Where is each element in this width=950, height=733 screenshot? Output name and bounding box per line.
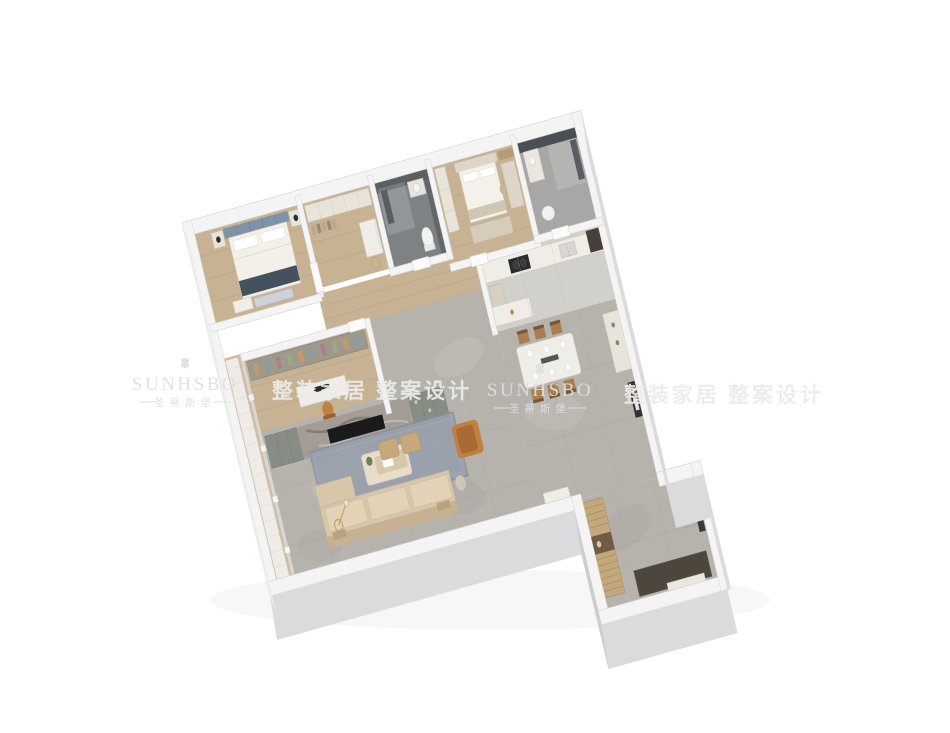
floorplan-render: SUNHSBO 圣蒂斯堡 整装家居 整案设计 SUNHSBO 圣蒂斯堡 整装家居… — [0, 0, 950, 733]
watermark-tagline-2: 整装家居 整案设计 — [624, 383, 824, 407]
watermark-brand-cn: 圣蒂斯堡 — [154, 396, 216, 409]
watermark-brand-en: SUNHSBO — [487, 380, 593, 401]
watermark-tagline-1: 整装家居 整案设计 — [272, 379, 472, 403]
floorplan-svg: SUNHSBO 圣蒂斯堡 整装家居 整案设计 SUNHSBO 圣蒂斯堡 整装家居… — [0, 0, 950, 733]
watermark-brand-cn: 圣蒂斯堡 — [509, 402, 571, 415]
watermark-brand-en: SUNHSBO — [132, 374, 238, 395]
